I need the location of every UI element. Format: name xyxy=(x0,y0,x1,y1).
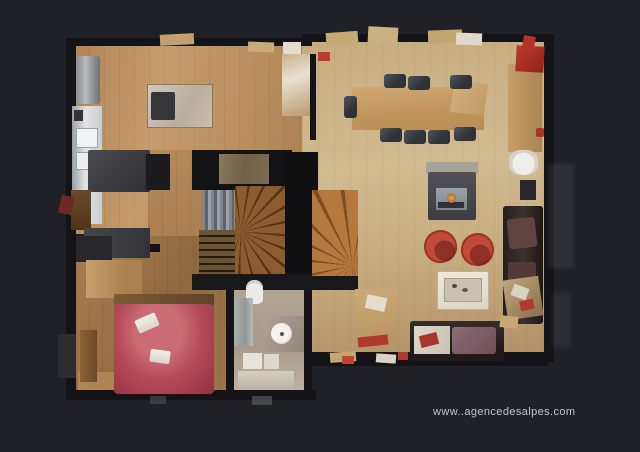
kitchen-table xyxy=(88,150,150,192)
bedroom-closet-shadow xyxy=(76,236,112,262)
open-door xyxy=(71,190,91,230)
dining-chair xyxy=(428,130,450,144)
folded-towel xyxy=(149,349,171,365)
balcony-fragment xyxy=(326,31,359,47)
balcony-fragment-white xyxy=(456,33,482,46)
tray-item xyxy=(452,284,457,288)
dark-side-unit xyxy=(520,180,536,200)
bath-step xyxy=(243,353,262,369)
shower-glass xyxy=(234,298,253,346)
dining-chair xyxy=(408,76,430,90)
basin-drain xyxy=(280,332,284,336)
white-armchair xyxy=(509,150,538,175)
stair-enclosure-bottom xyxy=(192,274,358,290)
tray-item xyxy=(462,288,468,292)
balcony-fragment-white xyxy=(283,42,301,54)
dining-chair xyxy=(450,75,472,89)
scan-ghost-artifact xyxy=(58,334,76,378)
window-sill-item-red xyxy=(398,352,408,360)
stair-landing xyxy=(219,154,269,184)
red-wall-decor xyxy=(536,128,544,137)
kitchen-table-bench xyxy=(146,154,170,190)
bath-platform xyxy=(238,371,294,388)
window-sill-item xyxy=(376,353,397,363)
red-cabinet xyxy=(515,45,544,72)
scan-ghost-artifact xyxy=(150,396,166,404)
sofa-cushion-mauve xyxy=(452,327,496,354)
floorplan-canvas: www..agencedesalpes.com xyxy=(0,0,640,452)
dining-chair-end xyxy=(344,96,357,118)
stove-fire-glow xyxy=(447,193,456,203)
wardrobe xyxy=(86,260,142,298)
stair-straight-flight xyxy=(199,230,235,274)
flower-box-red xyxy=(522,35,536,49)
bedroom-cabinet xyxy=(80,330,97,382)
balcony-fragment xyxy=(248,42,274,53)
agency-watermark: www..agencedesalpes.com xyxy=(433,405,576,419)
stair-winder-right xyxy=(312,190,358,276)
wall-entry-nook xyxy=(310,54,316,140)
dining-chair xyxy=(404,130,426,144)
corner-clutter xyxy=(499,315,518,329)
sofa-cushion xyxy=(507,217,538,250)
scan-ghost-artifact xyxy=(252,396,272,405)
balcony-fragment xyxy=(160,33,195,46)
scan-ghost-artifact xyxy=(548,164,574,268)
dining-chair xyxy=(380,128,402,142)
double-bed-red-cover xyxy=(114,304,214,394)
balcony-fragment xyxy=(368,26,399,44)
stair-glass-panel xyxy=(202,190,234,230)
fridge xyxy=(76,56,100,104)
stair-winder-left xyxy=(235,186,285,274)
kitchen-sink xyxy=(76,128,98,148)
flower-box-red xyxy=(318,52,330,61)
scan-ghost-artifact xyxy=(552,292,570,348)
sideboard xyxy=(508,64,542,152)
dining-chair xyxy=(454,127,476,141)
entry-closet-nook xyxy=(282,54,310,116)
window-sill-item-red xyxy=(342,356,354,364)
cooktop xyxy=(151,92,175,120)
counter-appliance xyxy=(74,110,83,121)
bath-step xyxy=(264,354,279,369)
dining-chair xyxy=(384,74,406,88)
